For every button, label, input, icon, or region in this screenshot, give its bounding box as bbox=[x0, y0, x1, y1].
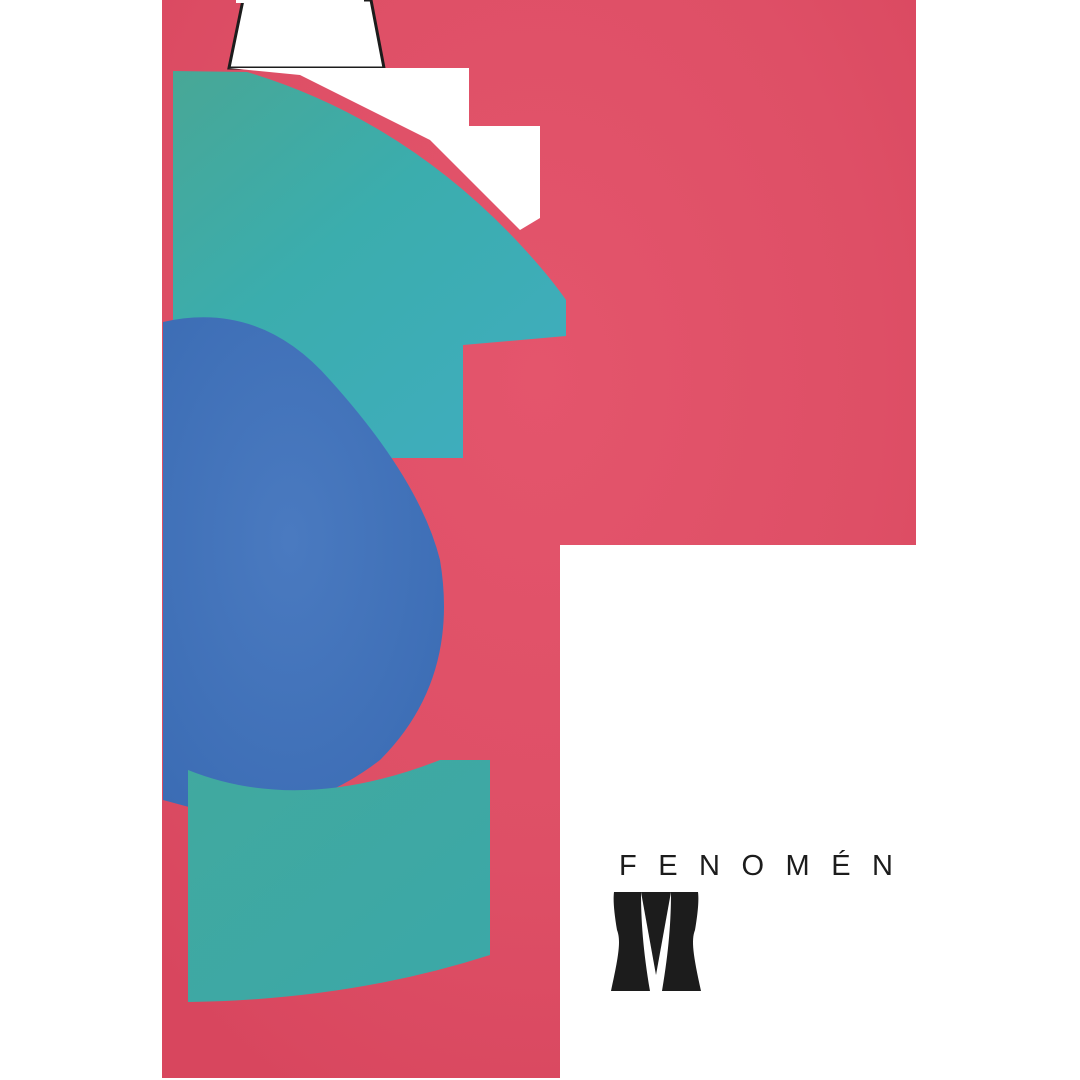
svg-text:FENOMÉN: FENOMÉN bbox=[619, 849, 915, 882]
